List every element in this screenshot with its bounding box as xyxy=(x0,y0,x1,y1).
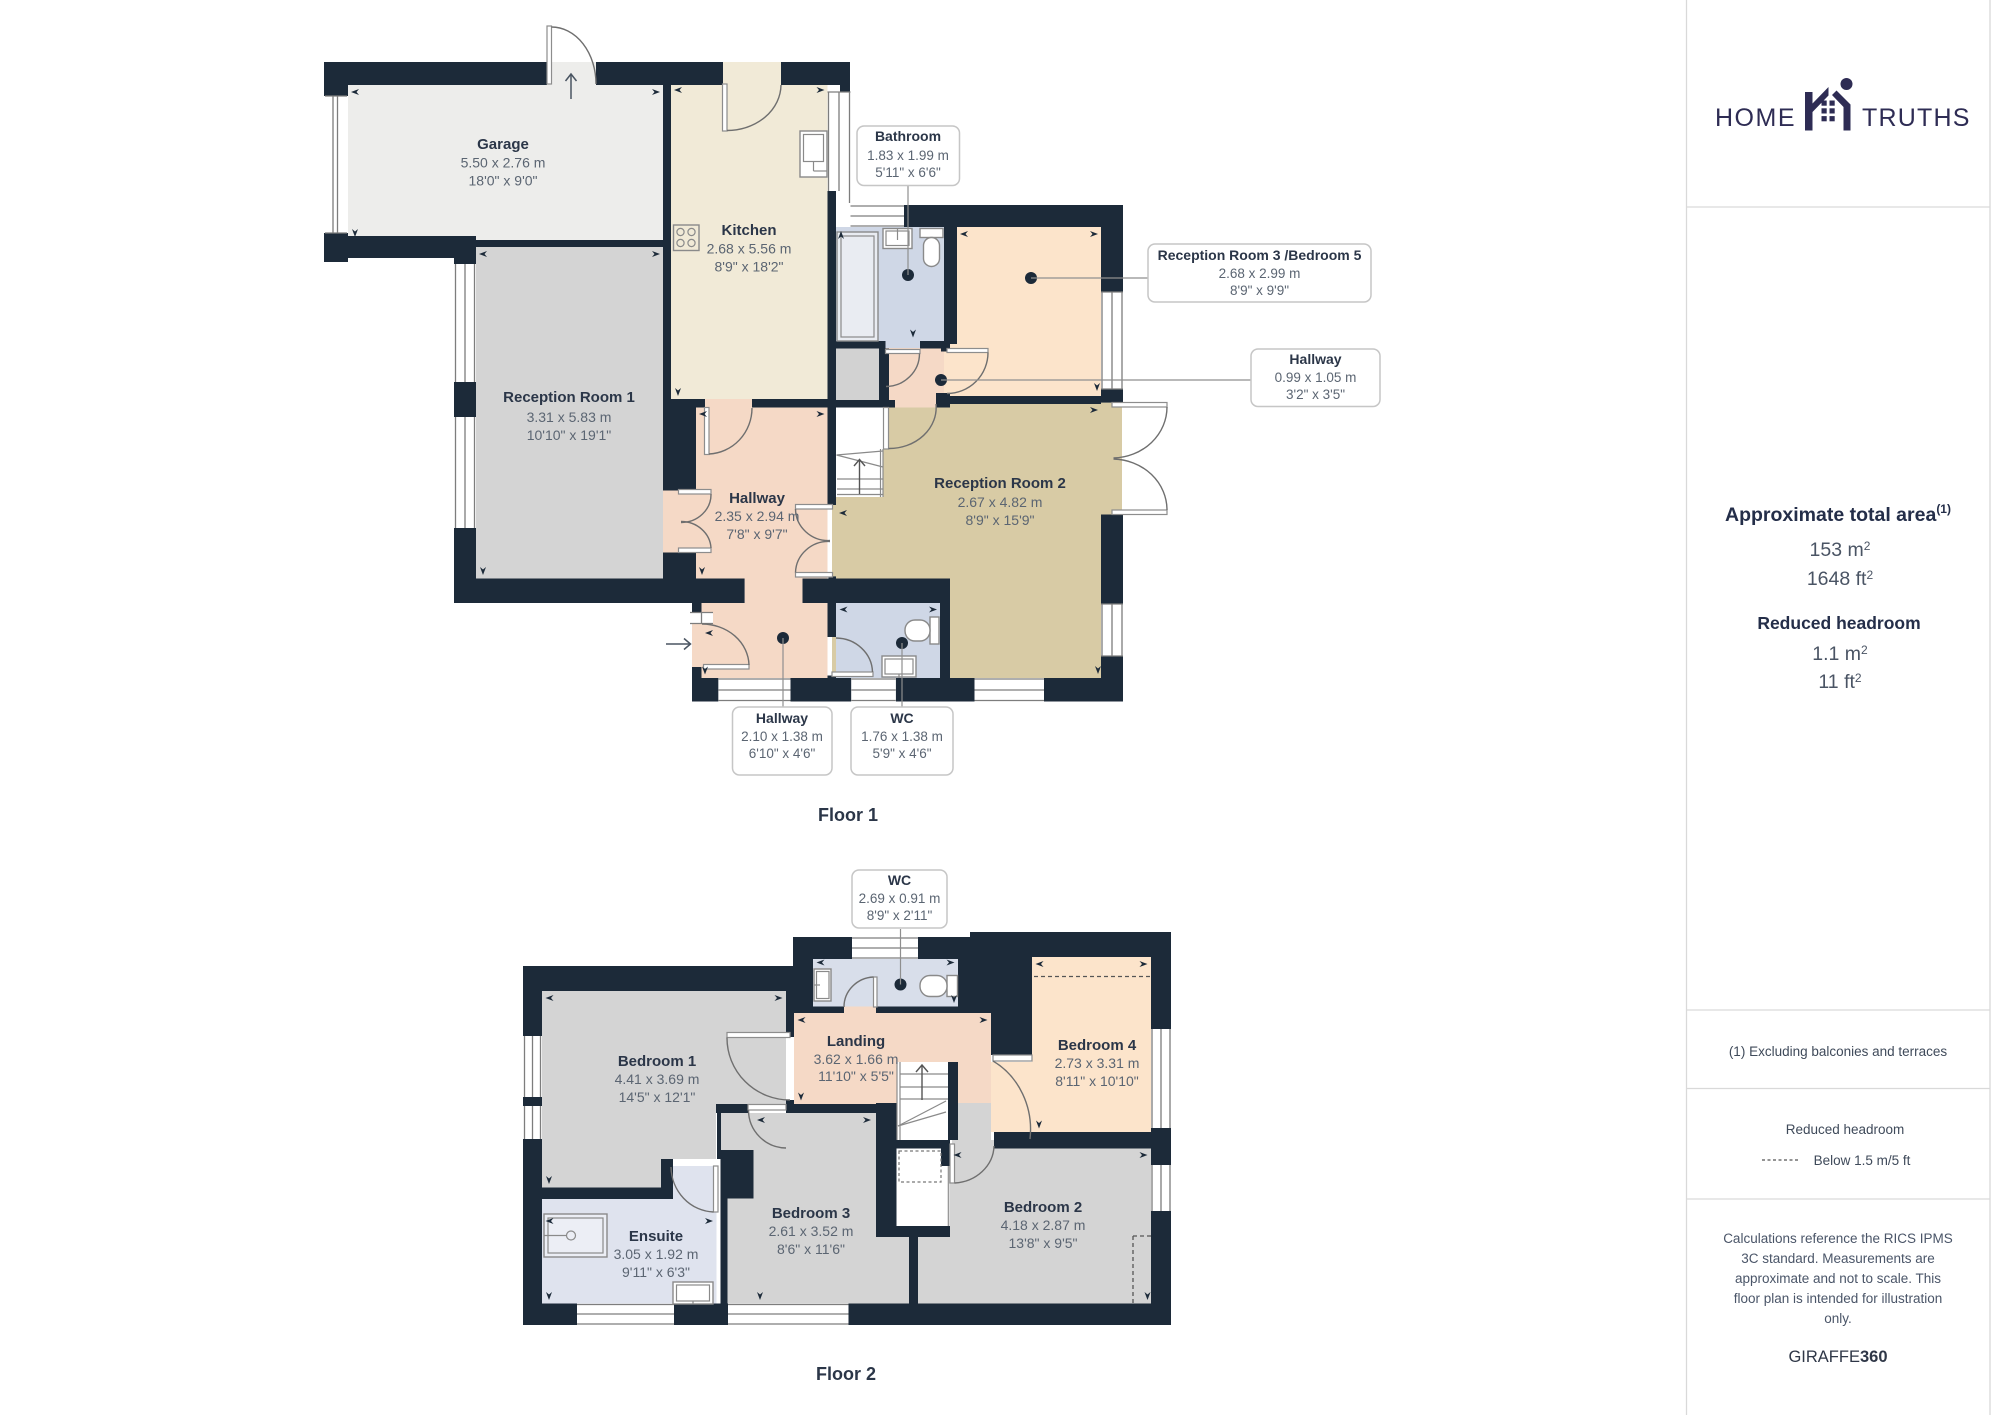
svg-text:only.: only. xyxy=(1824,1311,1852,1326)
svg-text:0.99 x 1.05 m: 0.99 x 1.05 m xyxy=(1275,370,1357,385)
svg-text:WC: WC xyxy=(890,710,913,726)
svg-text:Bedroom 3: Bedroom 3 xyxy=(772,1205,850,1222)
svg-text:Reduced headroom: Reduced headroom xyxy=(1786,1122,1905,1137)
svg-text:Bedroom 4: Bedroom 4 xyxy=(1058,1037,1137,1054)
svg-text:8'9" x 15'9": 8'9" x 15'9" xyxy=(966,512,1035,528)
svg-text:Hallway: Hallway xyxy=(729,490,786,507)
svg-text:2.73 x 3.31 m: 2.73 x 3.31 m xyxy=(1055,1055,1140,1071)
svg-text:4.41 x 3.69 m: 4.41 x 3.69 m xyxy=(615,1071,700,1087)
svg-text:Bathroom: Bathroom xyxy=(875,128,941,144)
svg-text:11'10" x 5'5": 11'10" x 5'5" xyxy=(818,1068,894,1084)
svg-text:6'10" x 4'6": 6'10" x 4'6" xyxy=(749,746,816,761)
svg-text:Floor 1: Floor 1 xyxy=(818,805,878,825)
svg-text:Hallway: Hallway xyxy=(756,710,808,726)
svg-text:(1) Excluding balconies and te: (1) Excluding balconies and terraces xyxy=(1729,1044,1948,1059)
svg-text:2.68 x 2.99 m: 2.68 x 2.99 m xyxy=(1219,266,1301,281)
svg-text:Ensuite: Ensuite xyxy=(629,1228,683,1245)
svg-text:Approximate total area(1): Approximate total area(1) xyxy=(1725,502,1951,526)
svg-text:Reception Room 1: Reception Room 1 xyxy=(503,389,635,406)
svg-text:5'9" x 4'6": 5'9" x 4'6" xyxy=(872,746,931,761)
svg-text:2.61 x 3.52 m: 2.61 x 3.52 m xyxy=(769,1223,854,1239)
svg-text:5.50 x 2.76 m: 5.50 x 2.76 m xyxy=(461,155,546,171)
svg-text:8'9" x 2'11": 8'9" x 2'11" xyxy=(867,908,933,923)
svg-text:Reception Room 3 /Bedroom 5: Reception Room 3 /Bedroom 5 xyxy=(1158,247,1362,263)
svg-text:5'11" x 6'6": 5'11" x 6'6" xyxy=(875,165,941,180)
svg-text:9'11" x 6'3": 9'11" x 6'3" xyxy=(622,1264,690,1280)
svg-text:13'8" x 9'5": 13'8" x 9'5" xyxy=(1009,1235,1078,1251)
svg-text:2.68 x 5.56 m: 2.68 x 5.56 m xyxy=(707,241,792,257)
svg-text:18'0" x 9'0": 18'0" x 9'0" xyxy=(469,173,538,189)
svg-text:153 m2: 153 m2 xyxy=(1810,539,1871,561)
svg-text:2.35 x 2.94 m: 2.35 x 2.94 m xyxy=(715,508,800,524)
svg-text:1.83 x 1.99 m: 1.83 x 1.99 m xyxy=(867,148,949,163)
svg-text:WC: WC xyxy=(888,872,911,888)
svg-text:3.62 x 1.66 m: 3.62 x 1.66 m xyxy=(814,1051,899,1067)
svg-text:10'10" x 19'1": 10'10" x 19'1" xyxy=(527,427,612,443)
svg-text:4.18 x 2.87 m: 4.18 x 2.87 m xyxy=(1001,1217,1086,1233)
svg-text:Kitchen: Kitchen xyxy=(721,222,776,239)
svg-text:3.31 x 5.83 m: 3.31 x 5.83 m xyxy=(527,409,612,425)
svg-text:3'2" x 3'5": 3'2" x 3'5" xyxy=(1286,387,1345,402)
svg-text:Landing: Landing xyxy=(827,1033,885,1050)
svg-text:8'9" x 18'2": 8'9" x 18'2" xyxy=(715,259,784,275)
svg-text:floor plan is intended for ill: floor plan is intended for illustration xyxy=(1734,1291,1943,1306)
svg-text:2.67 x 4.82 m: 2.67 x 4.82 m xyxy=(958,494,1043,510)
svg-text:Reduced headroom: Reduced headroom xyxy=(1757,613,1920,633)
svg-text:3.05 x 1.92 m: 3.05 x 1.92 m xyxy=(614,1246,699,1262)
svg-text:1.1 m2: 1.1 m2 xyxy=(1812,643,1868,665)
svg-text:8'6" x 11'6": 8'6" x 11'6" xyxy=(777,1241,845,1257)
svg-text:7'8" x 9'7": 7'8" x 9'7" xyxy=(726,526,787,542)
svg-text:Garage: Garage xyxy=(477,136,529,153)
svg-text:Calculations reference the RIC: Calculations reference the RICS IPMS xyxy=(1723,1231,1953,1246)
svg-text:8'9" x 9'9": 8'9" x 9'9" xyxy=(1230,283,1289,298)
svg-text:Reception Room 2: Reception Room 2 xyxy=(934,475,1066,492)
svg-text:8'11" x 10'10": 8'11" x 10'10" xyxy=(1055,1073,1139,1089)
svg-text:14'5" x 12'1": 14'5" x 12'1" xyxy=(619,1089,696,1105)
svg-text:Hallway: Hallway xyxy=(1289,351,1341,367)
svg-text:2.10 x 1.38 m: 2.10 x 1.38 m xyxy=(741,729,823,744)
svg-text:2.69 x 0.91 m: 2.69 x 0.91 m xyxy=(859,891,941,906)
svg-text:Floor 2: Floor 2 xyxy=(816,1364,876,1384)
svg-text:Bedroom 1: Bedroom 1 xyxy=(618,1053,696,1070)
svg-text:1.76 x 1.38 m: 1.76 x 1.38 m xyxy=(861,729,943,744)
svg-text:Below 1.5 m/5 ft: Below 1.5 m/5 ft xyxy=(1814,1153,1911,1168)
svg-text:3C standard. Measurements are: 3C standard. Measurements are xyxy=(1741,1251,1935,1266)
svg-text:approximate and not to scale.: approximate and not to scale. This xyxy=(1735,1271,1941,1286)
svg-text:TRUTHS: TRUTHS xyxy=(1862,104,1971,132)
svg-text:Bedroom 2: Bedroom 2 xyxy=(1004,1199,1082,1216)
svg-text:HOME: HOME xyxy=(1715,104,1796,132)
svg-text:1648 ft2: 1648 ft2 xyxy=(1807,568,1874,590)
svg-text:GIRAFFE360: GIRAFFE360 xyxy=(1788,1348,1887,1366)
